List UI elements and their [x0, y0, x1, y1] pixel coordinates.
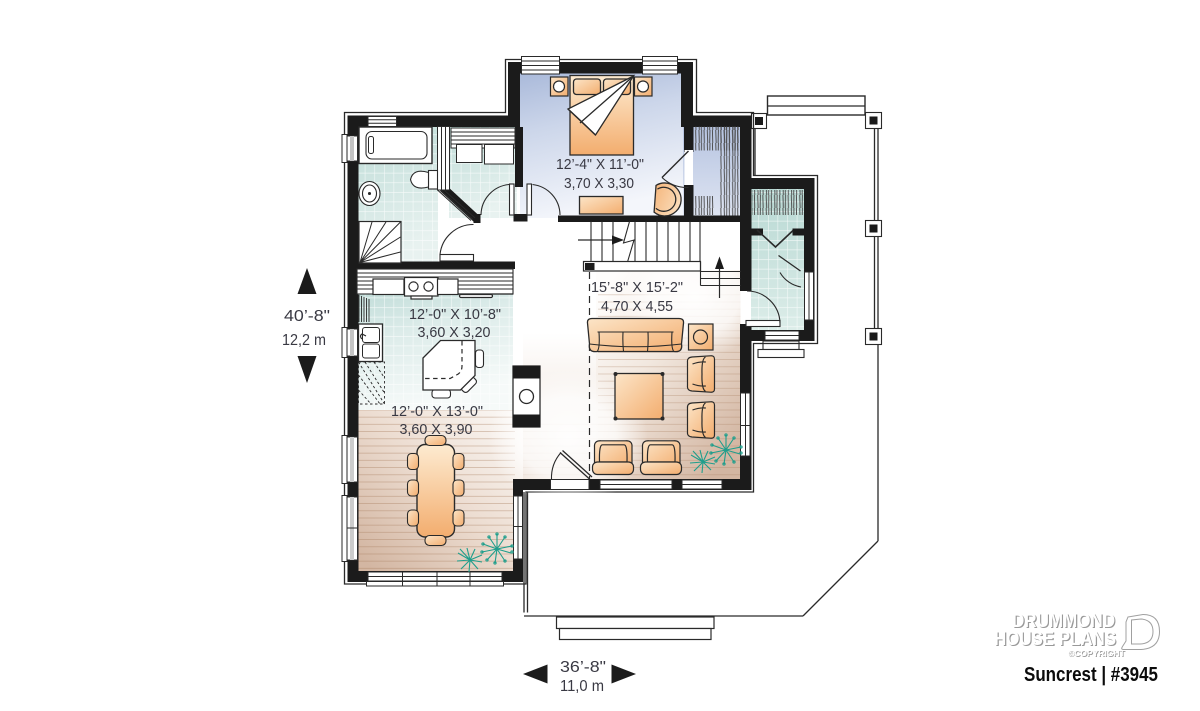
- svg-text:12,2 m: 12,2 m: [282, 332, 326, 349]
- svg-text:40’-8": 40’-8": [284, 308, 330, 325]
- svg-text:©COPYRIGHT: ©COPYRIGHT: [1068, 648, 1126, 658]
- svg-text:4,70 X 4,55: 4,70 X 4,55: [601, 298, 673, 315]
- svg-text:Suncrest | #3945: Suncrest | #3945: [1024, 663, 1158, 686]
- svg-text:15’-8" X 15’-2": 15’-8" X 15’-2": [591, 279, 683, 296]
- svg-text:11,0 m: 11,0 m: [560, 678, 604, 695]
- svg-text:3,70 X 3,30: 3,70 X 3,30: [564, 175, 634, 192]
- svg-text:12’-0" X 13’-0": 12’-0" X 13’-0": [391, 403, 483, 420]
- svg-text:3,60 X 3,90: 3,60 X 3,90: [400, 421, 473, 438]
- svg-text:HOUSE PLANS: HOUSE PLANS: [994, 629, 1116, 650]
- svg-text:36’-8": 36’-8": [560, 659, 606, 676]
- svg-text:12’-0" X 10’-8": 12’-0" X 10’-8": [409, 306, 501, 323]
- svg-text:12’-4" X 11’-0": 12’-4" X 11’-0": [556, 156, 644, 173]
- svg-text:3,60 X 3,20: 3,60 X 3,20: [418, 324, 491, 341]
